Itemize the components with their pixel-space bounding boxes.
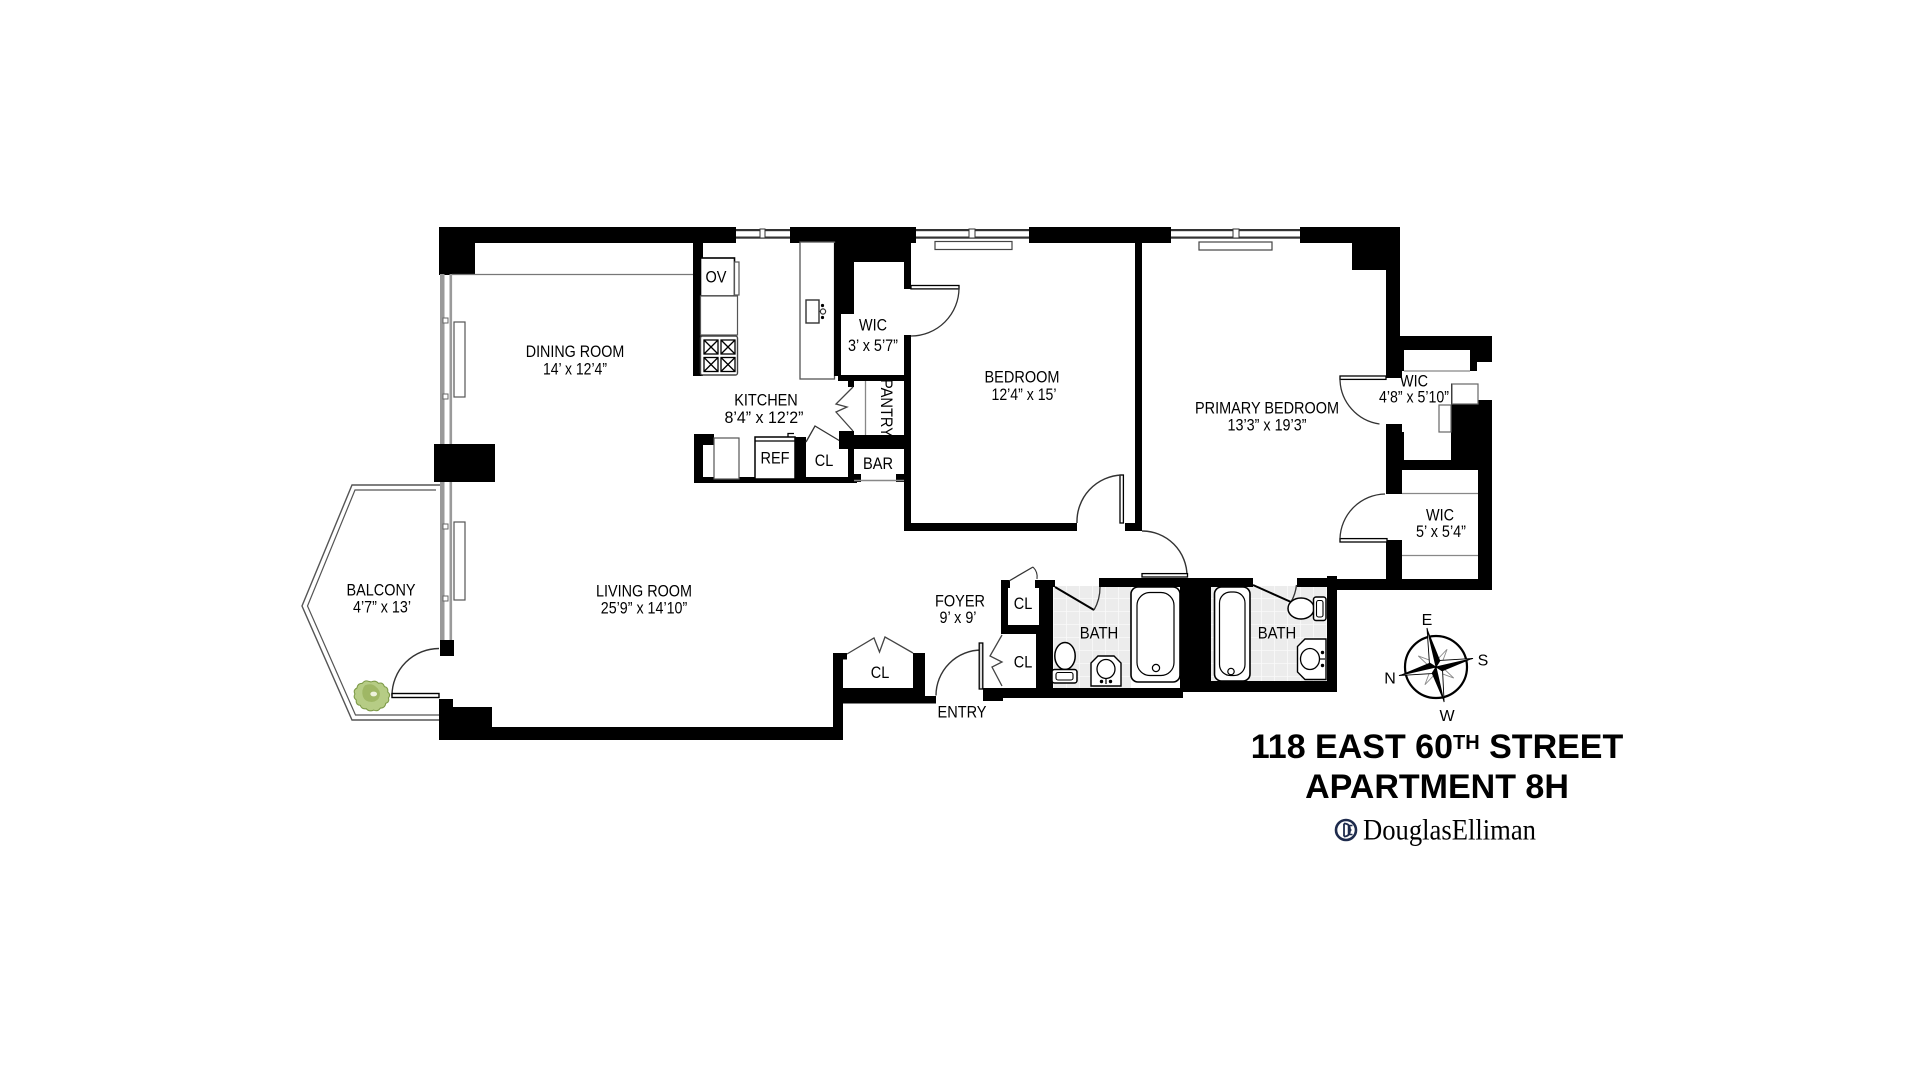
- svg-text:25’9” x 14’10”: 25’9” x 14’10”: [601, 599, 688, 618]
- svg-text:BATH: BATH: [1080, 624, 1119, 643]
- svg-text:DINING ROOM: DINING ROOM: [526, 342, 625, 361]
- svg-text:13’3” x 19’3”: 13’3” x 19’3”: [1228, 416, 1307, 435]
- svg-text:REF: REF: [761, 449, 790, 468]
- svg-text:BATH: BATH: [1258, 624, 1297, 643]
- svg-text:5’ x 5’4”: 5’ x 5’4”: [1416, 522, 1466, 541]
- svg-text:CL: CL: [871, 663, 890, 682]
- svg-text:CL: CL: [815, 451, 834, 470]
- svg-text:4’7” x 13’: 4’7” x 13’: [353, 598, 411, 617]
- svg-text:OV: OV: [706, 268, 728, 287]
- svg-text:BEDROOM: BEDROOM: [985, 368, 1060, 387]
- svg-text:E: E: [1422, 612, 1433, 629]
- svg-text:WIC: WIC: [859, 316, 887, 335]
- svg-text:DouglasElliman: DouglasElliman: [1363, 814, 1536, 847]
- svg-text:4’8” x 5’10”: 4’8” x 5’10”: [1379, 388, 1449, 407]
- svg-text:APARTMENT 8H: APARTMENT 8H: [1305, 768, 1569, 806]
- svg-text:14’ x 12’4”: 14’ x 12’4”: [543, 360, 607, 379]
- svg-text:118 EAST 60TH STREET: 118 EAST 60TH STREET: [1251, 728, 1624, 766]
- svg-text:N: N: [1384, 671, 1396, 688]
- svg-text:CL: CL: [1014, 594, 1033, 613]
- svg-text:12’4” x 15’: 12’4” x 15’: [992, 385, 1057, 404]
- svg-text:ENTRY: ENTRY: [938, 703, 987, 722]
- svg-text:3’ x 5’7”: 3’ x 5’7”: [848, 336, 898, 355]
- svg-text:CL: CL: [1014, 653, 1033, 672]
- svg-text:PANTRY: PANTRY: [877, 379, 896, 437]
- svg-text:S: S: [1478, 653, 1489, 670]
- svg-text:BAR: BAR: [863, 454, 893, 473]
- svg-text:W: W: [1439, 708, 1455, 725]
- svg-text:9’ x 9’: 9’ x 9’: [940, 608, 977, 627]
- svg-text:8’4” x 12’2”: 8’4” x 12’2”: [725, 408, 804, 427]
- svg-text:KITCHEN: KITCHEN: [734, 391, 798, 410]
